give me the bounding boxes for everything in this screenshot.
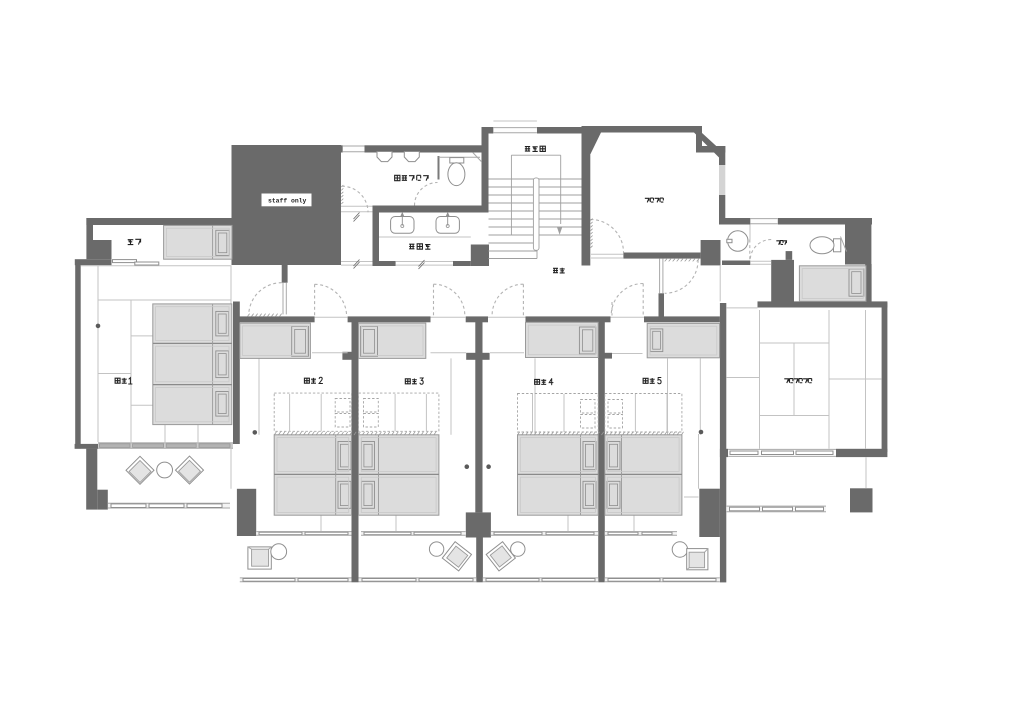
svg-text:staff only: staff only [268,198,307,205]
